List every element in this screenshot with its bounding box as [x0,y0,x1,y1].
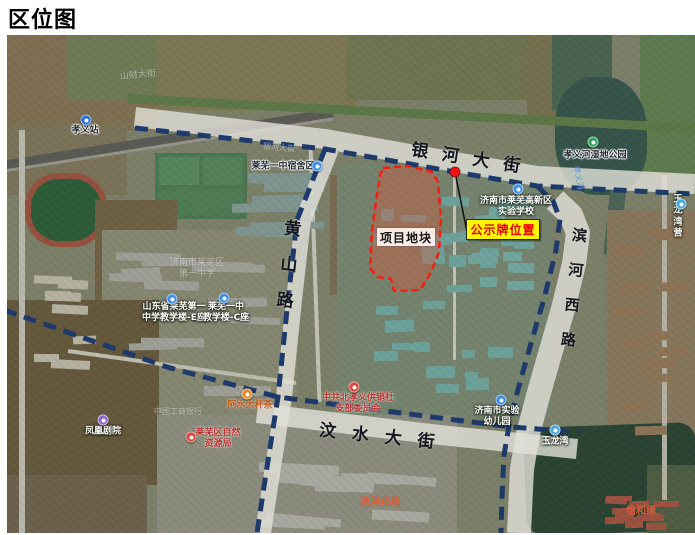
food-orange-poi-icon [242,389,253,400]
poi-label-shandong-laiwu-no1-teaching-bldg-e: 山东省莱芜第一 中学教学楼-E座 [142,302,206,325]
edu-blue-poi-icon [167,294,178,305]
poi-label-cpc-beixiaoyi-branch: 中共北孝义供销社 支部委员会 [322,393,394,416]
road-label-yinhe-dajie: 银河大街 [410,135,536,179]
poi-label-laiwu-no1-middle-school-faint: 济南市莱芜区 第一中学 [170,258,224,281]
scenic-blue-poi-icon [550,425,561,436]
poi-label-yulongwan: 玉龙湾 [541,436,568,447]
project-parcel-label: 项目地块 [377,228,435,246]
poi-label-ashui-dabeicha: 阿水大杯茶 [227,400,272,411]
page-title: 区位图 [8,2,77,34]
poi-label-binhe-huayuan: 滨河花苑 [360,497,400,510]
poi-label-jinan-experimental-kindergarten: 济南市实验 幼儿园 [474,406,519,429]
poi-label-yinhe-basemap-faint: 银河大街 [263,141,296,154]
purple-poi-icon [98,415,109,426]
road-label-huangshan-lu: 黄山路 [268,218,304,328]
scenic-blue-poi-icon [676,199,687,210]
poi-label-shancai-dajie-faint: 山财大街 [120,69,157,83]
road-label-binhe-xi-lu: 滨河西路 [555,226,591,367]
road-label-wenshui-dajie: 汶水大街 [318,416,452,455]
poi-label-xiaoyihe-wetland-park: 孝义河湿地公园 [563,150,626,161]
park-green-poi-icon [588,137,599,148]
edu-blue-poi-icon [513,184,524,195]
poi-label-fenghuang-theater: 凤凰剧院 [85,426,121,437]
location-map: 银河大街黄山路滨河西路汶水大街孝义站山财大街银河大街莱芜一中宿舍区孝义河湿地公园… [7,35,695,533]
notice-board-label: 公示牌位置 [466,219,540,240]
poi-label-xiaoyi-station: 孝义站 [71,125,98,136]
edu-blue-poi-icon [496,395,507,406]
poi-label-yin-edge-partial: 银 [689,179,695,190]
poi-label-laiwu-natural-resources-bureau: 莱芜区自然 资源局 [195,428,240,451]
poi-label-xiaoyihe-river: 孝义河 [571,165,586,191]
poi-label-laiwu-yizhong-teaching-bldg-c: 莱芜一中 教学楼-C座 [203,302,249,325]
edu-blue-poi-icon [312,161,323,172]
map-labels-layer: 银河大街黄山路滨河西路汶水大街孝义站山财大街银河大街莱芜一中宿舍区孝义河湿地公园… [7,35,695,533]
poi-label-laiwu-yizhong-dorm: 莱芜一中宿舍区 [251,161,314,172]
poi-label-icbc-faint: 中国工商银行 [154,407,202,417]
metro-blue-poi-icon [81,115,92,126]
gov-red-poi-icon [186,432,197,443]
poi-label-laiwu-hitech-experimental-school: 济南市莱芜高新区 实验学校 [480,196,552,219]
gov-red-poi-icon [349,382,360,393]
edu-blue-poi-icon [219,293,230,304]
poi-label-yihe-yuan: 怡和缘 [626,506,656,519]
